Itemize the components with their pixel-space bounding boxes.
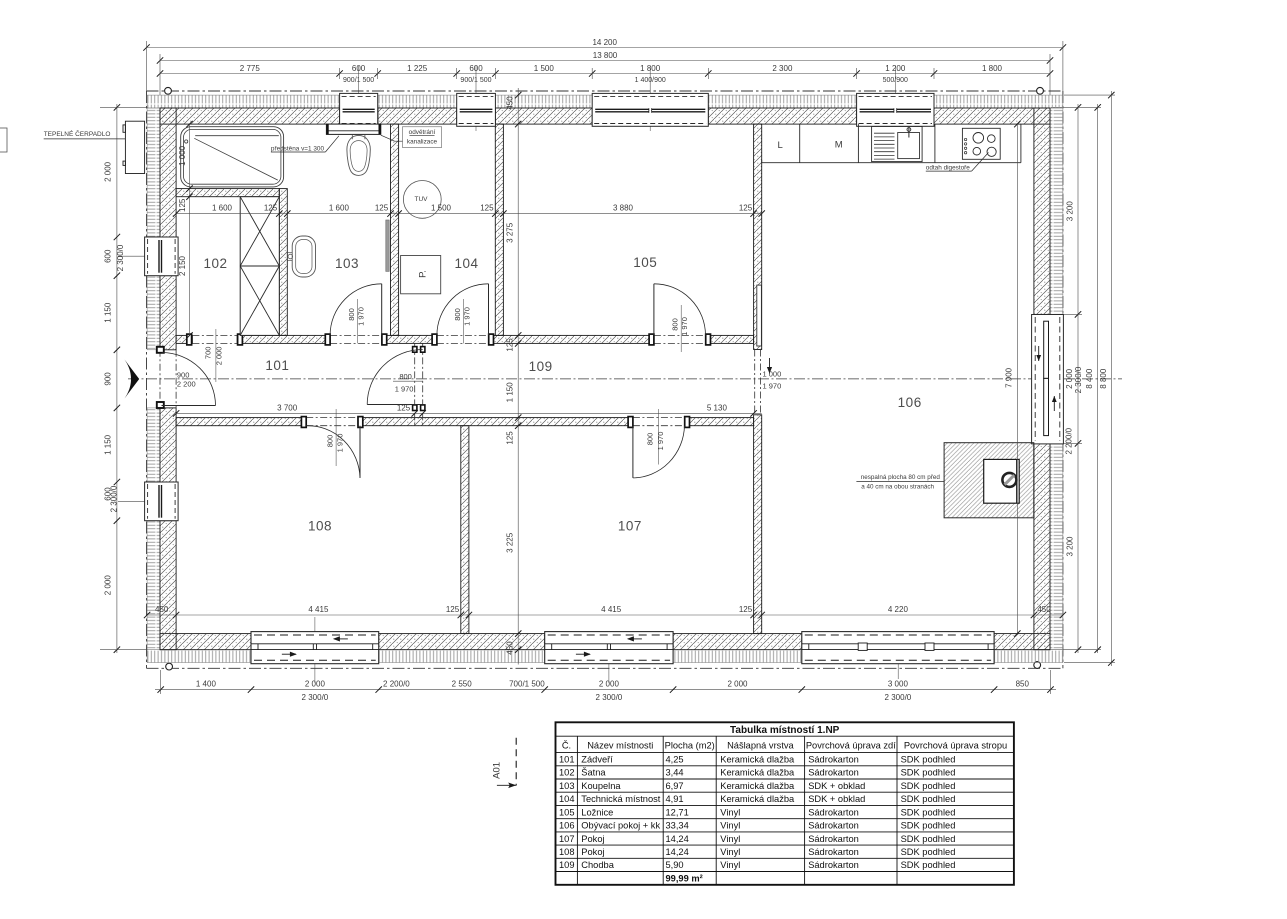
svg-text:SDK + obklad: SDK + obklad [808, 794, 865, 804]
svg-text:3 275: 3 275 [506, 222, 515, 243]
svg-text:odtah digestoře: odtah digestoře [926, 164, 971, 171]
svg-text:14 200: 14 200 [592, 38, 617, 47]
svg-text:předstěna v=1 300: předstěna v=1 300 [271, 145, 325, 152]
svg-text:2 300/0: 2 300/0 [596, 693, 623, 702]
svg-text:1 225: 1 225 [407, 64, 428, 73]
svg-text:Keramická dlažba: Keramická dlažba [720, 781, 795, 791]
svg-text:2 300: 2 300 [772, 64, 793, 73]
svg-text:SDK + obklad: SDK + obklad [808, 781, 865, 791]
svg-text:SDK podhled: SDK podhled [901, 847, 956, 857]
svg-text:2 150: 2 150 [178, 255, 187, 276]
svg-text:3 000: 3 000 [888, 680, 909, 689]
svg-text:1 970: 1 970 [356, 307, 365, 326]
svg-text:125: 125 [506, 338, 515, 352]
svg-text:108: 108 [559, 847, 575, 857]
svg-text:4 415: 4 415 [601, 605, 622, 614]
svg-text:Šatna: Šatna [581, 768, 606, 778]
svg-text:125: 125 [264, 204, 278, 213]
svg-text:Č.: Č. [562, 741, 571, 751]
svg-text:109: 109 [529, 359, 553, 374]
svg-text:Nášlapná vrstva: Nášlapná vrstva [727, 741, 794, 751]
svg-text:Obývací pokoj + kk: Obývací pokoj + kk [581, 821, 660, 831]
svg-text:800: 800 [671, 318, 680, 331]
svg-text:1 800: 1 800 [982, 64, 1003, 73]
svg-text:Sádrokarton: Sádrokarton [808, 807, 859, 817]
svg-text:2 300/0: 2 300/0 [302, 693, 329, 702]
svg-text:600: 600 [104, 249, 113, 263]
svg-text:2 000: 2 000 [104, 575, 113, 596]
svg-text:SDK podhled: SDK podhled [901, 755, 956, 765]
svg-text:2 300/0: 2 300/0 [885, 693, 912, 702]
svg-text:2 200: 2 200 [177, 380, 196, 389]
svg-text:Zádveří: Zádveří [581, 755, 613, 765]
svg-text:107: 107 [559, 834, 575, 844]
svg-text:1 400: 1 400 [196, 680, 217, 689]
svg-text:Plocha (m2): Plocha (m2) [665, 741, 715, 751]
svg-text:4 415: 4 415 [308, 605, 329, 614]
svg-text:1 000: 1 000 [178, 145, 187, 166]
svg-text:8 400: 8 400 [1085, 368, 1094, 389]
svg-text:Sádrokarton: Sádrokarton [808, 834, 859, 844]
svg-text:2 000: 2 000 [104, 161, 113, 182]
svg-text:SDK podhled: SDK podhled [901, 821, 956, 831]
svg-text:99,99 m²: 99,99 m² [666, 873, 703, 883]
svg-text:105: 105 [559, 807, 575, 817]
svg-text:1 500: 1 500 [534, 64, 555, 73]
svg-text:Pokoj: Pokoj [581, 847, 604, 857]
svg-text:106: 106 [898, 395, 922, 410]
svg-text:Keramická dlažba: Keramická dlažba [720, 768, 795, 778]
svg-text:Sádrokarton: Sádrokarton [808, 768, 859, 778]
svg-text:Povrchová úprava stropu: Povrchová úprava stropu [904, 741, 1007, 751]
svg-text:1 970: 1 970 [656, 432, 665, 451]
svg-text:Vinyl: Vinyl [720, 847, 740, 857]
svg-text:4,91: 4,91 [666, 794, 684, 804]
svg-text:1 150: 1 150 [506, 382, 515, 403]
svg-text:125: 125 [397, 404, 411, 413]
svg-text:Vinyl: Vinyl [720, 834, 740, 844]
svg-text:1 600: 1 600 [212, 204, 233, 213]
svg-text:3 700: 3 700 [277, 404, 298, 413]
svg-text:2 200/0: 2 200/0 [383, 680, 410, 689]
svg-text:108: 108 [308, 518, 332, 533]
svg-text:800: 800 [347, 308, 356, 321]
svg-text:103: 103 [559, 781, 575, 791]
svg-text:103: 103 [335, 256, 359, 271]
svg-text:TUV: TUV [415, 196, 429, 203]
svg-text:Tabulka místností 1.NP: Tabulka místností 1.NP [730, 725, 840, 736]
svg-text:SDK podhled: SDK podhled [901, 860, 956, 870]
svg-text:1 970: 1 970 [395, 385, 414, 394]
svg-text:14,24: 14,24 [666, 834, 689, 844]
svg-text:4,25: 4,25 [666, 755, 684, 765]
svg-text:800: 800 [326, 435, 335, 448]
svg-text:Technická místnost: Technická místnost [581, 794, 660, 804]
svg-text:102: 102 [559, 768, 575, 778]
svg-text:104: 104 [559, 794, 575, 804]
svg-text:Ložnice: Ložnice [581, 807, 613, 817]
svg-text:A01: A01 [492, 762, 503, 779]
svg-text:Sádrokarton: Sádrokarton [808, 821, 859, 831]
svg-text:1 970: 1 970 [336, 434, 345, 453]
svg-text:5 130: 5 130 [707, 404, 728, 413]
svg-text:L: L [778, 140, 783, 151]
svg-text:800: 800 [646, 433, 655, 446]
svg-text:14,24: 14,24 [666, 847, 689, 857]
svg-text:125: 125 [506, 431, 515, 445]
svg-text:125: 125 [739, 605, 753, 614]
svg-text:Keramická dlažba: Keramická dlažba [720, 755, 795, 765]
svg-text:450: 450 [506, 641, 515, 655]
svg-text:SDK podhled: SDK podhled [901, 768, 956, 778]
svg-text:2 300/0: 2 300/0 [116, 244, 125, 271]
svg-text:7 900: 7 900 [1005, 367, 1014, 388]
svg-text:107: 107 [618, 518, 642, 533]
svg-text:450: 450 [1037, 605, 1051, 614]
svg-text:6,97: 6,97 [666, 781, 684, 791]
svg-text:5,90: 5,90 [666, 860, 684, 870]
svg-text:125: 125 [480, 204, 494, 213]
svg-text:125: 125 [178, 198, 187, 212]
svg-text:Sádrokarton: Sádrokarton [808, 847, 859, 857]
svg-text:2 550: 2 550 [452, 680, 473, 689]
svg-text:33,34: 33,34 [666, 821, 689, 831]
svg-text:Pokoj: Pokoj [581, 834, 604, 844]
svg-text:700/1 500: 700/1 500 [509, 680, 545, 689]
svg-text:Keramická dlažba: Keramická dlažba [720, 794, 795, 804]
svg-text:1 150: 1 150 [104, 434, 113, 455]
svg-text:nespalná plocha 80 cm před: nespalná plocha 80 cm před [861, 474, 941, 481]
svg-text:Sádrokarton: Sádrokarton [808, 755, 859, 765]
svg-text:12,71: 12,71 [666, 807, 689, 817]
svg-text:3,44: 3,44 [666, 768, 684, 778]
svg-text:125: 125 [375, 204, 389, 213]
svg-text:SDK podhled: SDK podhled [901, 807, 956, 817]
svg-text:106: 106 [559, 821, 575, 831]
svg-text:Vinyl: Vinyl [720, 807, 740, 817]
svg-text:900: 900 [177, 370, 190, 379]
svg-text:125: 125 [739, 204, 753, 213]
svg-text:Vinyl: Vinyl [720, 860, 740, 870]
svg-text:1 150: 1 150 [104, 302, 113, 323]
svg-text:3 880: 3 880 [613, 204, 634, 213]
svg-text:1 500: 1 500 [431, 204, 452, 213]
svg-text:Koupelna: Koupelna [581, 781, 621, 791]
svg-text:a 40 cm na obou stranách: a 40 cm na obou stranách [861, 483, 934, 490]
svg-text:1 970: 1 970 [462, 307, 471, 326]
svg-text:2 200/0: 2 200/0 [1065, 427, 1074, 454]
svg-text:450: 450 [155, 605, 169, 614]
svg-text:900: 900 [104, 372, 113, 386]
svg-text:1 600: 1 600 [329, 204, 350, 213]
svg-text:Sádrokarton: Sádrokarton [808, 860, 859, 870]
svg-text:104: 104 [454, 256, 478, 271]
svg-text:109: 109 [559, 860, 575, 870]
svg-text:1 000: 1 000 [763, 370, 782, 379]
svg-text:2 300/0: 2 300/0 [1074, 366, 1083, 393]
svg-text:Chodba: Chodba [581, 860, 614, 870]
svg-text:2 000: 2 000 [727, 680, 748, 689]
svg-text:4 220: 4 220 [888, 605, 909, 614]
svg-text:2 000: 2 000 [215, 347, 224, 366]
svg-text:3 200: 3 200 [1066, 536, 1075, 557]
svg-text:Povrchová úprava zdí: Povrchová úprava zdí [806, 741, 896, 751]
svg-text:M: M [835, 140, 843, 151]
svg-text:SDK podhled: SDK podhled [901, 834, 956, 844]
svg-text:2 300/0: 2 300/0 [110, 485, 119, 512]
svg-text:1 970: 1 970 [763, 382, 782, 391]
svg-text:2 775: 2 775 [240, 64, 261, 73]
svg-text:800: 800 [453, 308, 462, 321]
svg-text:3 225: 3 225 [506, 532, 515, 553]
svg-text:SDK podhled: SDK podhled [901, 781, 956, 791]
svg-text:odvětrání: odvětrání [409, 129, 436, 136]
svg-text:450: 450 [506, 96, 515, 110]
svg-text:125: 125 [446, 605, 460, 614]
svg-text:Vinyl: Vinyl [720, 821, 740, 831]
svg-text:700: 700 [203, 347, 212, 360]
svg-text:Název místnosti: Název místnosti [587, 741, 653, 751]
svg-text:TEPELNÉ ČERPADLO: TEPELNÉ ČERPADLO [44, 129, 111, 138]
svg-text:102: 102 [203, 256, 227, 271]
svg-text:800: 800 [399, 372, 412, 381]
svg-text:101: 101 [559, 755, 575, 765]
svg-text:8 800: 8 800 [1099, 368, 1108, 389]
svg-text:3 200: 3 200 [1066, 201, 1075, 222]
svg-text:101: 101 [265, 358, 289, 373]
svg-text:SDK podhled: SDK podhled [901, 794, 956, 804]
svg-text:850: 850 [1016, 680, 1030, 689]
svg-text:105: 105 [633, 255, 657, 270]
svg-text:1 970: 1 970 [680, 317, 689, 336]
svg-text:P.: P. [418, 270, 429, 278]
svg-text:kanalizace: kanalizace [407, 138, 438, 145]
svg-text:13 800: 13 800 [593, 51, 618, 60]
